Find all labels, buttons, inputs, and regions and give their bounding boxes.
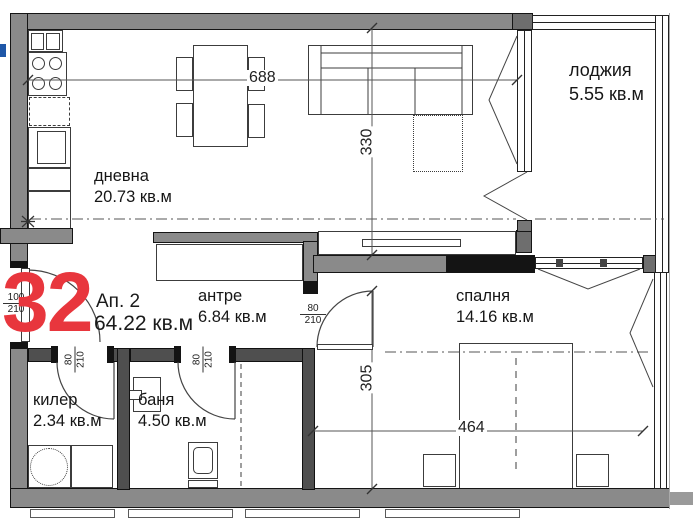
door-jamb bbox=[174, 346, 181, 363]
door-jamb bbox=[229, 346, 236, 363]
bedroom-label: спалня 14.16 кв.м bbox=[456, 286, 534, 328]
wall-living-bedroom-black bbox=[447, 255, 535, 273]
window-glass-line bbox=[536, 263, 642, 264]
room-area: 6.84 кв.м bbox=[198, 307, 267, 328]
sofa-chaise-dotted bbox=[413, 115, 463, 172]
door-width: 80 bbox=[192, 347, 204, 373]
chair bbox=[176, 57, 193, 91]
neighbor-wall-outline bbox=[128, 509, 233, 518]
loggia-window-indicator bbox=[538, 269, 640, 289]
building-edge-line bbox=[669, 13, 670, 509]
living-window-indicator bbox=[489, 36, 517, 164]
room-area: 20.73 кв.м bbox=[94, 187, 172, 208]
dim-305-label: 305 bbox=[359, 363, 375, 394]
room-area: 5.55 кв.м bbox=[569, 82, 644, 106]
kitchen-cabinet bbox=[28, 168, 71, 191]
room-name: лоджия bbox=[569, 58, 644, 82]
loggia-top-wall bbox=[532, 15, 669, 30]
door-width: 80 bbox=[300, 303, 326, 315]
room-name: антре bbox=[198, 286, 267, 307]
loggia-top-wall-line bbox=[533, 22, 668, 23]
burner-icon bbox=[32, 57, 45, 70]
burner-icon bbox=[49, 77, 62, 90]
nightstand bbox=[423, 454, 456, 487]
wall-living-bedroom bbox=[313, 255, 447, 273]
sink-bowl-left bbox=[31, 33, 44, 50]
room-area: 14.16 кв.м bbox=[456, 307, 534, 328]
apartment-area: 64.22 кв.м bbox=[94, 312, 193, 336]
neighbor-wall-outline bbox=[385, 509, 520, 518]
chair bbox=[248, 104, 265, 138]
storage-door-size: 80 210 bbox=[64, 347, 87, 373]
wall-hall-top bbox=[153, 232, 318, 243]
tv-cabinet-inner bbox=[362, 239, 461, 247]
balcony-door-indicator bbox=[484, 172, 527, 220]
apartment-label: Ап. 2 bbox=[96, 291, 140, 313]
door-jamb bbox=[107, 346, 114, 363]
bed bbox=[459, 343, 573, 489]
bedroom-right-window bbox=[654, 272, 667, 489]
living-loggia-window bbox=[517, 30, 532, 172]
window-mullion bbox=[556, 259, 563, 267]
room-name: спалня bbox=[456, 286, 534, 307]
washer-drum-icon bbox=[30, 448, 68, 486]
room-name: дневна bbox=[94, 166, 172, 187]
room-name: килер bbox=[33, 390, 102, 411]
wall-left-lower bbox=[10, 342, 28, 508]
wall-bottom-stub bbox=[670, 492, 693, 505]
balcony-door-stub bbox=[517, 220, 532, 232]
blue-corner-mark bbox=[0, 44, 6, 57]
door-height: 210 bbox=[300, 315, 326, 326]
wall-top bbox=[10, 13, 533, 30]
dim-330-label: 330 bbox=[359, 127, 375, 158]
window-mullion bbox=[600, 259, 607, 267]
nightstand bbox=[576, 454, 609, 487]
window-glass-line bbox=[524, 31, 525, 171]
door-width: 80 bbox=[64, 347, 76, 373]
hall-label: антре 6.84 кв.м bbox=[198, 286, 267, 328]
wall-bottom bbox=[10, 488, 670, 508]
bath-door-size: 80 210 bbox=[192, 347, 215, 373]
dining-table bbox=[193, 45, 248, 147]
apartment-number: 32 bbox=[2, 262, 91, 342]
column-top bbox=[512, 13, 533, 30]
toilet-tank bbox=[188, 480, 218, 488]
neighbor-wall-outline bbox=[245, 509, 360, 518]
storage-cabinet bbox=[71, 445, 113, 488]
loggia-right-wall-line bbox=[662, 16, 663, 272]
bedroom-window-indicator bbox=[630, 279, 653, 387]
toilet-bowl bbox=[193, 447, 213, 474]
burner-icon bbox=[32, 77, 45, 90]
kitchen-cabinet bbox=[28, 191, 71, 230]
dim-464-label: 464 bbox=[456, 420, 487, 436]
bedroom-loggia-window bbox=[535, 257, 643, 269]
fridge-inner bbox=[37, 131, 66, 164]
dishwasher bbox=[29, 97, 70, 126]
room-name: баня bbox=[138, 390, 207, 411]
column-loggia-left bbox=[516, 230, 532, 253]
chair bbox=[176, 103, 193, 137]
wall-hall-right-black bbox=[303, 281, 318, 294]
living-room-label: дневна 20.73 кв.м bbox=[94, 166, 172, 208]
bedroom-door-leaf bbox=[317, 344, 373, 350]
sofa bbox=[308, 45, 473, 115]
wall-storage-bath-divider bbox=[117, 348, 130, 490]
sink-bowl-right bbox=[46, 33, 60, 50]
loggia-label: лоджия 5.55 кв.м bbox=[569, 58, 644, 106]
loggia-right-wall bbox=[655, 15, 669, 273]
dim-688-label: 688 bbox=[247, 70, 278, 86]
storage-label: килер 2.34 кв.м bbox=[33, 390, 102, 432]
bath-label: баня 4.50 кв.м bbox=[138, 390, 207, 432]
wall-left-branch bbox=[0, 228, 73, 244]
door-height: 210 bbox=[204, 347, 215, 373]
hall-wardrobe bbox=[156, 244, 303, 281]
room-area: 4.50 кв.м bbox=[138, 411, 207, 432]
neighbor-wall-outline bbox=[30, 509, 115, 518]
wall-bath-top-left bbox=[130, 348, 178, 362]
burner-icon bbox=[49, 57, 62, 70]
bedroom-door-size: 80 210 bbox=[300, 303, 326, 326]
room-area: 2.34 кв.м bbox=[33, 411, 102, 432]
window-glass-line bbox=[660, 273, 661, 488]
door-height: 210 bbox=[76, 347, 87, 373]
floor-plan: дневна 20.73 кв.м антре 6.84 кв.м спалня… bbox=[0, 0, 693, 528]
wall-bath-right bbox=[302, 348, 315, 490]
